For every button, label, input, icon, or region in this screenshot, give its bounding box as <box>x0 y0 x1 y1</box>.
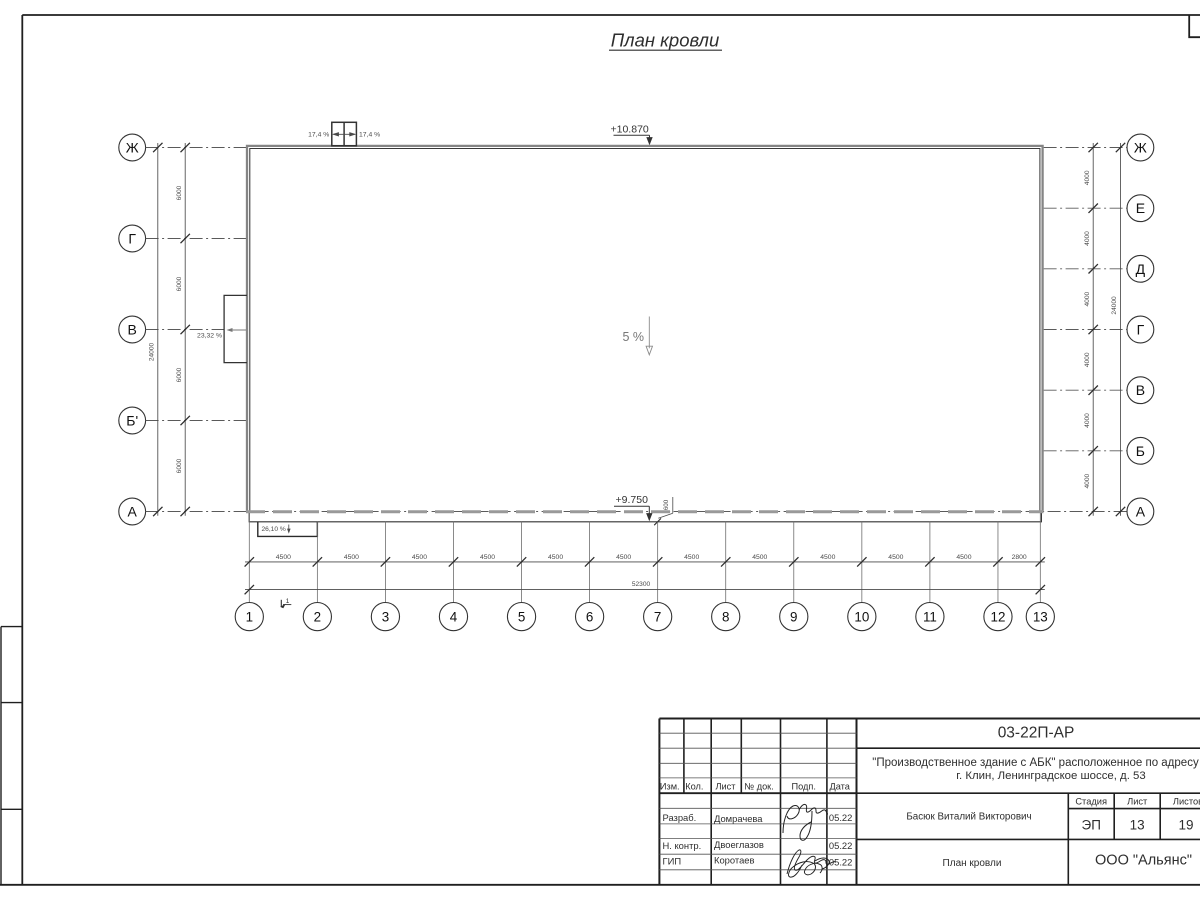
svg-text:4000: 4000 <box>1084 170 1091 185</box>
svg-text:6000: 6000 <box>176 276 183 291</box>
svg-text:+10.870: +10.870 <box>611 123 649 135</box>
svg-text:4500: 4500 <box>956 554 971 561</box>
svg-text:4000: 4000 <box>1084 413 1091 428</box>
svg-text:03-22П-АР: 03-22П-АР <box>998 725 1075 742</box>
svg-text:6000: 6000 <box>176 458 183 473</box>
svg-text:4500: 4500 <box>344 554 359 561</box>
svg-text:Г: Г <box>128 231 136 247</box>
svg-text:Домрачева: Домрачева <box>714 813 763 824</box>
svg-text:8: 8 <box>722 610 729 625</box>
svg-text:3: 3 <box>382 610 389 625</box>
svg-text:4500: 4500 <box>752 554 767 561</box>
svg-text:6: 6 <box>586 610 593 625</box>
svg-text:4000: 4000 <box>1084 291 1091 306</box>
svg-text:Листов: Листов <box>1173 797 1200 807</box>
svg-text:7: 7 <box>654 610 661 625</box>
svg-text:Разраб.: Разраб. <box>663 812 697 823</box>
svg-text:2800: 2800 <box>1012 554 1027 561</box>
svg-text:13: 13 <box>1130 818 1145 833</box>
svg-text:Изм.: Изм. <box>660 782 680 792</box>
svg-text:4500: 4500 <box>684 554 699 561</box>
svg-text:Ж: Ж <box>1134 140 1147 156</box>
svg-text:24000: 24000 <box>149 343 156 362</box>
svg-text:17,4 %: 17,4 % <box>308 132 329 139</box>
svg-text:13: 13 <box>1033 610 1048 625</box>
svg-text:Дата: Дата <box>830 781 851 791</box>
svg-text:В: В <box>1136 382 1145 398</box>
svg-text:ЭП: ЭП <box>1081 818 1100 833</box>
svg-text:Лист: Лист <box>1127 797 1148 807</box>
svg-text:4500: 4500 <box>412 554 427 561</box>
svg-text:Кол.: Кол. <box>685 782 703 792</box>
svg-text:600: 600 <box>663 499 670 510</box>
svg-text:г. Клин, Ленинградское шоссе,: г. Клин, Ленинградское шоссе, д. 53 <box>956 770 1145 782</box>
svg-text:05.22: 05.22 <box>829 840 852 851</box>
svg-text:5 %: 5 % <box>623 330 645 344</box>
svg-text:26,10 %: 26,10 % <box>262 526 286 533</box>
svg-text:9: 9 <box>790 610 797 625</box>
svg-text:+9.750: +9.750 <box>616 494 649 506</box>
svg-text:24000: 24000 <box>1111 296 1118 315</box>
svg-text:"Производственное здание с АБК: "Производственное здание с АБК" располож… <box>872 757 1199 769</box>
svg-text:А: А <box>128 504 138 520</box>
svg-text:4000: 4000 <box>1084 473 1091 488</box>
svg-text:ГИП: ГИП <box>663 855 682 866</box>
svg-text:Стадия: Стадия <box>1075 797 1107 807</box>
svg-text:Лист: Лист <box>716 782 737 792</box>
svg-text:Б: Б <box>1136 443 1145 459</box>
svg-text:10: 10 <box>854 610 869 625</box>
svg-text:1: 1 <box>246 610 253 625</box>
svg-text:1: 1 <box>286 598 290 605</box>
svg-text:05.22: 05.22 <box>829 812 852 823</box>
svg-text:Коротаев: Коротаев <box>714 854 755 865</box>
svg-text:52300: 52300 <box>632 581 651 588</box>
svg-text:4000: 4000 <box>1084 231 1091 246</box>
svg-text:4500: 4500 <box>888 554 903 561</box>
svg-text:А: А <box>1136 504 1146 520</box>
svg-text:6000: 6000 <box>176 367 183 382</box>
svg-text:№ док.: № док. <box>744 782 773 792</box>
svg-text:6000: 6000 <box>176 185 183 200</box>
svg-text:Е: Е <box>1136 200 1145 216</box>
svg-text:4500: 4500 <box>820 554 835 561</box>
svg-text:4500: 4500 <box>616 554 631 561</box>
svg-text:12: 12 <box>991 610 1006 625</box>
svg-text:Г: Г <box>1137 322 1145 338</box>
svg-text:4500: 4500 <box>276 554 291 561</box>
svg-text:23,32 %: 23,32 % <box>197 332 222 339</box>
svg-text:2: 2 <box>314 610 321 625</box>
svg-text:Подп.: Подп. <box>792 782 816 792</box>
svg-text:В: В <box>128 322 137 338</box>
svg-text:19: 19 <box>1178 818 1193 833</box>
svg-text:17,4 %: 17,4 % <box>359 132 380 139</box>
svg-text:Н. контр.: Н. контр. <box>663 840 702 851</box>
svg-text:Д: Д <box>1136 261 1146 277</box>
svg-text:Басюк Виталий Викторович: Басюк Виталий Викторович <box>906 812 1031 823</box>
svg-text:4500: 4500 <box>480 554 495 561</box>
svg-text:4500: 4500 <box>548 554 563 561</box>
svg-text:План кровли: План кровли <box>611 29 720 50</box>
svg-text:Ж: Ж <box>126 140 139 156</box>
svg-text:4: 4 <box>450 610 458 625</box>
svg-text:5: 5 <box>518 610 525 625</box>
svg-text:11: 11 <box>923 610 937 625</box>
svg-text:4000: 4000 <box>1084 352 1091 367</box>
svg-text:ООО "Альянс": ООО "Альянс" <box>1095 852 1192 868</box>
svg-text:Двоеглазов: Двоеглазов <box>714 839 764 850</box>
svg-text:План кровли: План кровли <box>943 858 1002 869</box>
svg-text:Б': Б' <box>126 413 138 429</box>
